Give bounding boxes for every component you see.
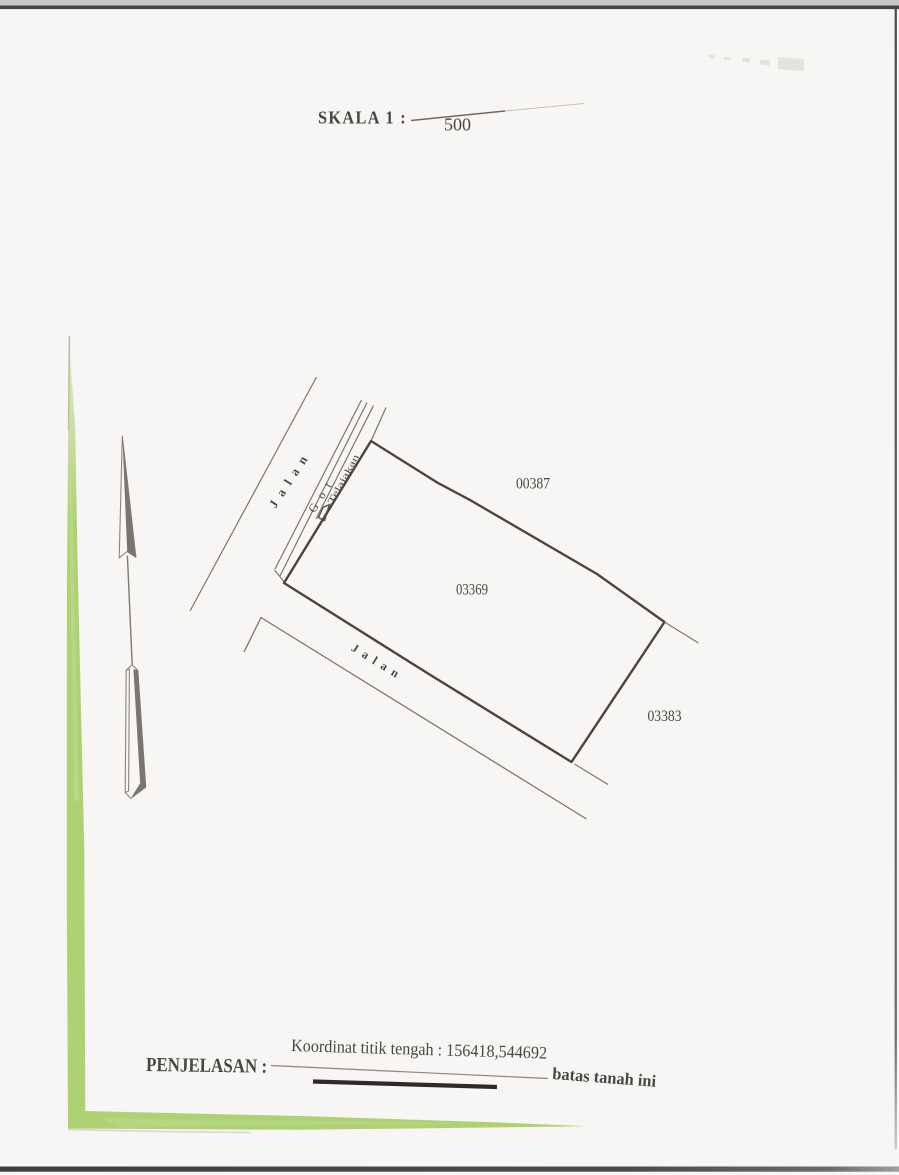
svg-text:03383: 03383 xyxy=(648,708,682,725)
svg-text:500: 500 xyxy=(444,115,471,135)
svg-text:03369: 03369 xyxy=(456,582,488,599)
svg-text:00387: 00387 xyxy=(516,476,550,493)
svg-text:SKALA 1 :: SKALA 1 : xyxy=(318,108,407,128)
svg-text:PENJELASAN :: PENJELASAN : xyxy=(146,1054,267,1078)
